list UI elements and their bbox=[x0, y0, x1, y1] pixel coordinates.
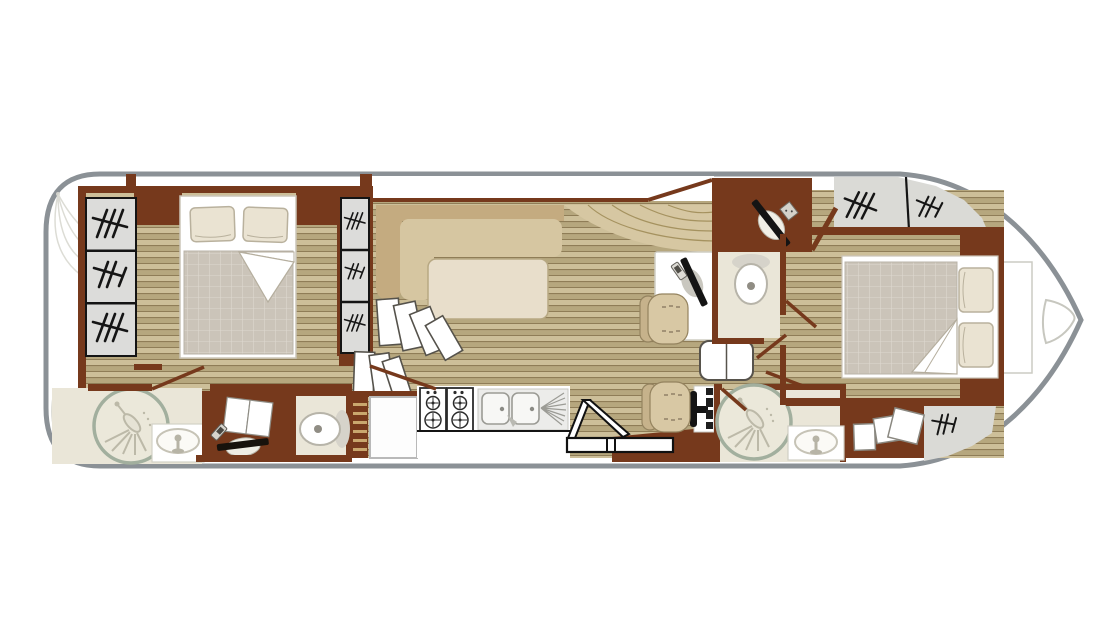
pillow bbox=[959, 323, 993, 367]
floor-plan-canvas bbox=[0, 0, 1120, 640]
pilot-seat bbox=[642, 382, 690, 432]
pillow bbox=[190, 206, 235, 242]
wardrobe-block bbox=[134, 193, 182, 225]
sink-basin bbox=[512, 393, 539, 424]
cabin-wall bbox=[780, 234, 786, 300]
sofa-back bbox=[376, 205, 564, 221]
cabin-wall bbox=[78, 186, 368, 193]
wall-ladder bbox=[352, 397, 368, 458]
aft-toilet-room bbox=[290, 391, 352, 462]
aft-bathroom bbox=[52, 388, 204, 464]
washbasin-icon bbox=[795, 430, 837, 455]
wardrobe-block bbox=[296, 193, 344, 225]
cabin-wall bbox=[78, 192, 86, 392]
towels bbox=[223, 397, 273, 436]
toilet-icon bbox=[300, 410, 350, 448]
pillow bbox=[243, 207, 288, 243]
top-right-deck bbox=[834, 177, 988, 232]
leaf-table bbox=[700, 341, 753, 380]
bow-steps-cabinet bbox=[846, 406, 924, 458]
window-band-inner bbox=[337, 186, 373, 366]
cabin-wall bbox=[134, 364, 162, 370]
boat-floor-plan bbox=[0, 0, 1120, 640]
double-bed-aft bbox=[180, 196, 296, 358]
fridge bbox=[370, 397, 417, 458]
sofa-arm bbox=[376, 205, 402, 300]
cabin-wall bbox=[786, 227, 1004, 235]
gas-hob-icon bbox=[420, 388, 473, 431]
pillow bbox=[959, 268, 993, 312]
sink-unit bbox=[478, 389, 568, 430]
washbasin-icon bbox=[157, 429, 199, 454]
sink-basin bbox=[482, 393, 509, 424]
helm-station bbox=[642, 382, 714, 432]
dressing-seat bbox=[640, 294, 688, 344]
wardrobe bbox=[202, 391, 290, 462]
window-band-port bbox=[86, 198, 136, 356]
saloon-table bbox=[428, 259, 548, 319]
cabin-wall bbox=[780, 345, 786, 405]
double-bed-forward bbox=[842, 256, 998, 378]
forward-toilet-room bbox=[712, 252, 786, 344]
toilet-icon bbox=[732, 254, 770, 304]
